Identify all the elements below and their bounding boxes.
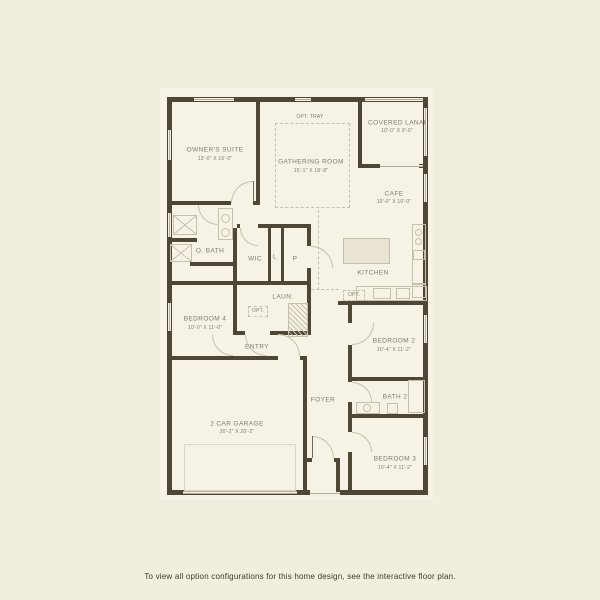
window bbox=[168, 213, 171, 237]
fixture-basin bbox=[221, 214, 230, 223]
fixture-basin bbox=[221, 228, 230, 237]
fixture-outline bbox=[356, 286, 427, 301]
owners-suite-dims: 13'-0" x 15'-0" bbox=[198, 156, 233, 162]
opening-dashed-line bbox=[318, 210, 319, 290]
fixture-basin bbox=[415, 229, 422, 236]
window bbox=[365, 98, 423, 101]
fixture-outline bbox=[373, 288, 391, 299]
wall-segment bbox=[268, 228, 271, 285]
garage-door bbox=[183, 491, 297, 494]
door-arc bbox=[240, 228, 258, 246]
shower-fixture bbox=[173, 215, 197, 235]
cafe-dims: 10'-0" x 10'-0" bbox=[377, 199, 412, 205]
entry-label: ENTRY bbox=[245, 344, 269, 351]
wall-segment bbox=[358, 164, 380, 168]
foyer-label: FOYER bbox=[311, 397, 335, 404]
window bbox=[424, 108, 427, 156]
floorplan-page: OWNER'S SUITE 13'-0" x 15'-0" OPT. TRAY … bbox=[0, 0, 600, 600]
linen-label: L bbox=[273, 254, 277, 261]
optional-feature-outline bbox=[275, 123, 350, 208]
covered-lanai-dims: 10'-0" x 9'-0" bbox=[381, 128, 413, 134]
door-arc bbox=[198, 205, 218, 225]
door-arc bbox=[352, 382, 372, 402]
door-arc bbox=[278, 334, 300, 356]
wall-segment bbox=[258, 224, 311, 228]
window bbox=[168, 303, 171, 331]
wall-segment bbox=[167, 356, 278, 360]
floor-plan: OWNER'S SUITE 13'-0" x 15'-0" OPT. TRAY … bbox=[160, 88, 433, 500]
opt-tray-label: OPT. TRAY bbox=[296, 114, 323, 120]
wall-segment bbox=[348, 301, 352, 323]
bedroom2-dims: 10'-4" x 11'-2" bbox=[377, 347, 411, 353]
bath2-label: BATH 2 bbox=[383, 394, 408, 401]
garage-label: 2 CAR GARAGE bbox=[210, 421, 264, 428]
window bbox=[295, 98, 311, 101]
window bbox=[168, 130, 171, 160]
cafe-label: CAFE bbox=[385, 191, 404, 198]
window bbox=[424, 315, 427, 343]
fixture-outline bbox=[413, 250, 425, 260]
wall-segment bbox=[167, 238, 197, 242]
wall-segment bbox=[253, 201, 260, 205]
fixture-outline bbox=[408, 380, 425, 413]
window bbox=[310, 492, 340, 494]
door-arc bbox=[312, 436, 334, 458]
bedroom4-dims: 10'-0" x 11'-0" bbox=[188, 325, 222, 331]
bedroom2-label: BEDROOM 2 bbox=[373, 338, 416, 345]
kitchen-label: KITCHEN bbox=[357, 270, 388, 277]
wall-segment bbox=[336, 458, 340, 494]
garage-door-apron bbox=[184, 444, 296, 491]
covered-lanai-label: COVERED LANAI bbox=[368, 120, 426, 127]
door-arc bbox=[352, 432, 372, 452]
opt-laundry-label: OPT. bbox=[252, 308, 264, 314]
fixture-outline bbox=[396, 288, 410, 299]
wall-segment bbox=[167, 281, 311, 285]
window bbox=[194, 98, 234, 101]
wall-segment bbox=[348, 452, 352, 492]
wall-segment bbox=[233, 285, 237, 335]
wall-segment bbox=[233, 228, 237, 285]
wall-segment bbox=[303, 356, 307, 492]
fixture-basin bbox=[415, 238, 422, 245]
bedroom3-label: BEDROOM 3 bbox=[374, 456, 417, 463]
pantry-label: P bbox=[293, 256, 298, 263]
door-arc bbox=[311, 246, 333, 268]
door-arc bbox=[212, 335, 233, 356]
wall-segment bbox=[190, 262, 237, 266]
wall-segment bbox=[256, 97, 260, 205]
gathering-room-dims: 15'-1" x 18'-8" bbox=[294, 168, 329, 174]
opt-kitchen-label: OPT. bbox=[348, 292, 360, 298]
door-arc bbox=[352, 323, 374, 345]
owners-suite-label: OWNER'S SUITE bbox=[187, 147, 244, 154]
window bbox=[424, 437, 427, 465]
wall-segment bbox=[352, 414, 427, 418]
door-leaf bbox=[253, 181, 254, 201]
gathering-room-label: GATHERING ROOM bbox=[278, 159, 344, 166]
owners-bath-label: O. BATH bbox=[196, 248, 224, 255]
wall-segment bbox=[281, 228, 284, 285]
laundry-appliance bbox=[288, 303, 308, 337]
wall-segment bbox=[237, 331, 245, 335]
wall-segment bbox=[340, 490, 428, 495]
garage-dims: 20'-2" x 20'-2" bbox=[220, 429, 255, 435]
fixture-basin bbox=[363, 404, 371, 412]
bedroom3-dims: 10'-4" x 11'-2" bbox=[378, 465, 412, 471]
window bbox=[424, 174, 427, 202]
shower-fixture bbox=[170, 244, 192, 262]
opening-dashed-line bbox=[311, 289, 339, 290]
caption-text: To view all option configurations for th… bbox=[0, 572, 600, 581]
bedroom4-label: BEDROOM 4 bbox=[184, 316, 227, 323]
door-arc bbox=[231, 181, 253, 203]
fixture-outline bbox=[387, 403, 398, 414]
laundry-label: LAUN. bbox=[272, 294, 293, 301]
wall-segment bbox=[358, 97, 362, 168]
wall-segment bbox=[307, 228, 311, 246]
window bbox=[380, 165, 423, 167]
wall-segment bbox=[307, 458, 312, 462]
kitchen-island bbox=[343, 238, 390, 264]
wic-label: WIC bbox=[248, 256, 262, 263]
door-leaf bbox=[312, 436, 313, 458]
